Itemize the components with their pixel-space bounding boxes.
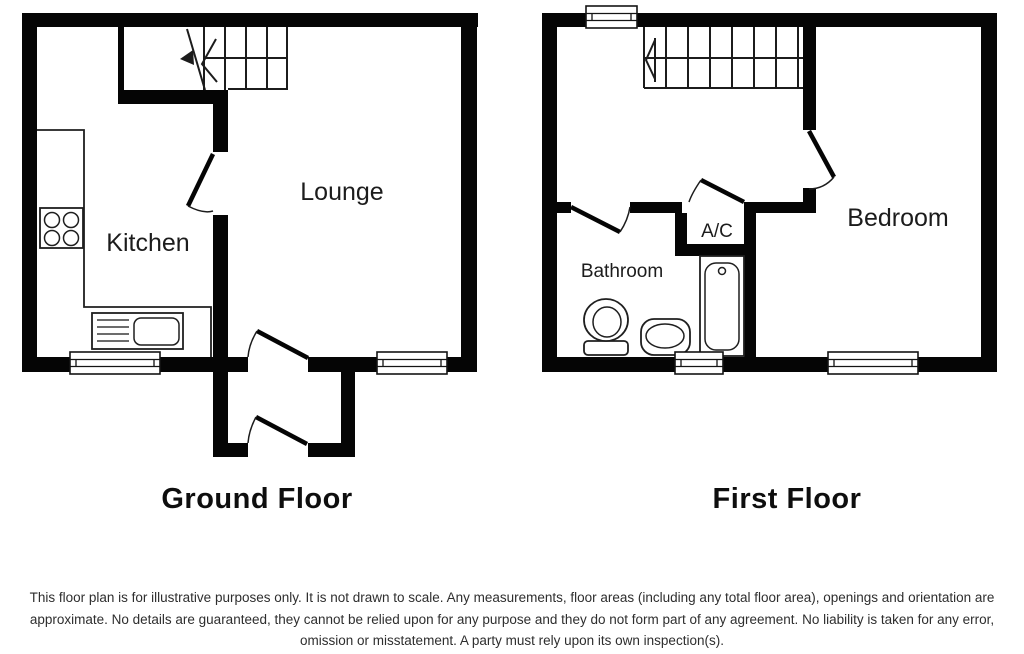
bathroom-label: Bathroom [581, 261, 663, 282]
disclaimer-line: This floor plan is for illustrative purp… [0, 587, 1024, 609]
bathtub-icon [700, 256, 744, 356]
ground-floor-plan: Kitchen Lounge Ground Floor [22, 13, 478, 515]
disclaimer-line: omission or misstatement. A party must r… [0, 630, 1024, 652]
kitchen-label: Kitchen [106, 229, 189, 257]
window-icon [377, 352, 447, 374]
floor-plan-canvas: Kitchen Lounge Ground Floor [0, 0, 1024, 654]
door-swing-icon [248, 417, 307, 444]
door-swing-icon [248, 331, 308, 358]
door-swing-icon [809, 131, 834, 189]
door-swing-icon [571, 207, 630, 232]
window-icon [675, 352, 723, 374]
stairs-icon [180, 27, 287, 90]
toilet-icon [584, 299, 628, 355]
ground-floor-title: Ground Floor [161, 483, 352, 515]
stairs-icon [644, 27, 803, 88]
hob-icon [40, 208, 83, 248]
lounge-label: Lounge [300, 178, 383, 206]
window-icon [586, 6, 637, 28]
floor-plan-page: Kitchen Lounge Ground Floor [0, 0, 1024, 654]
door-swing-icon [188, 154, 213, 212]
window-icon [828, 352, 918, 374]
ac-label: A/C [701, 221, 733, 242]
window-icon [70, 352, 160, 374]
first-floor-title: First Floor [713, 483, 862, 515]
sink-icon [92, 313, 183, 349]
first-floor-plan: Bathroom A/C Bedroom First Floor [542, 6, 997, 515]
door-swing-icon [689, 180, 744, 202]
disclaimer: This floor plan is for illustrative purp… [0, 587, 1024, 652]
basin-icon [641, 319, 690, 355]
disclaimer-line: approximate. No details are guaranteed, … [0, 609, 1024, 631]
bedroom-label: Bedroom [847, 204, 948, 232]
walls [22, 13, 478, 457]
